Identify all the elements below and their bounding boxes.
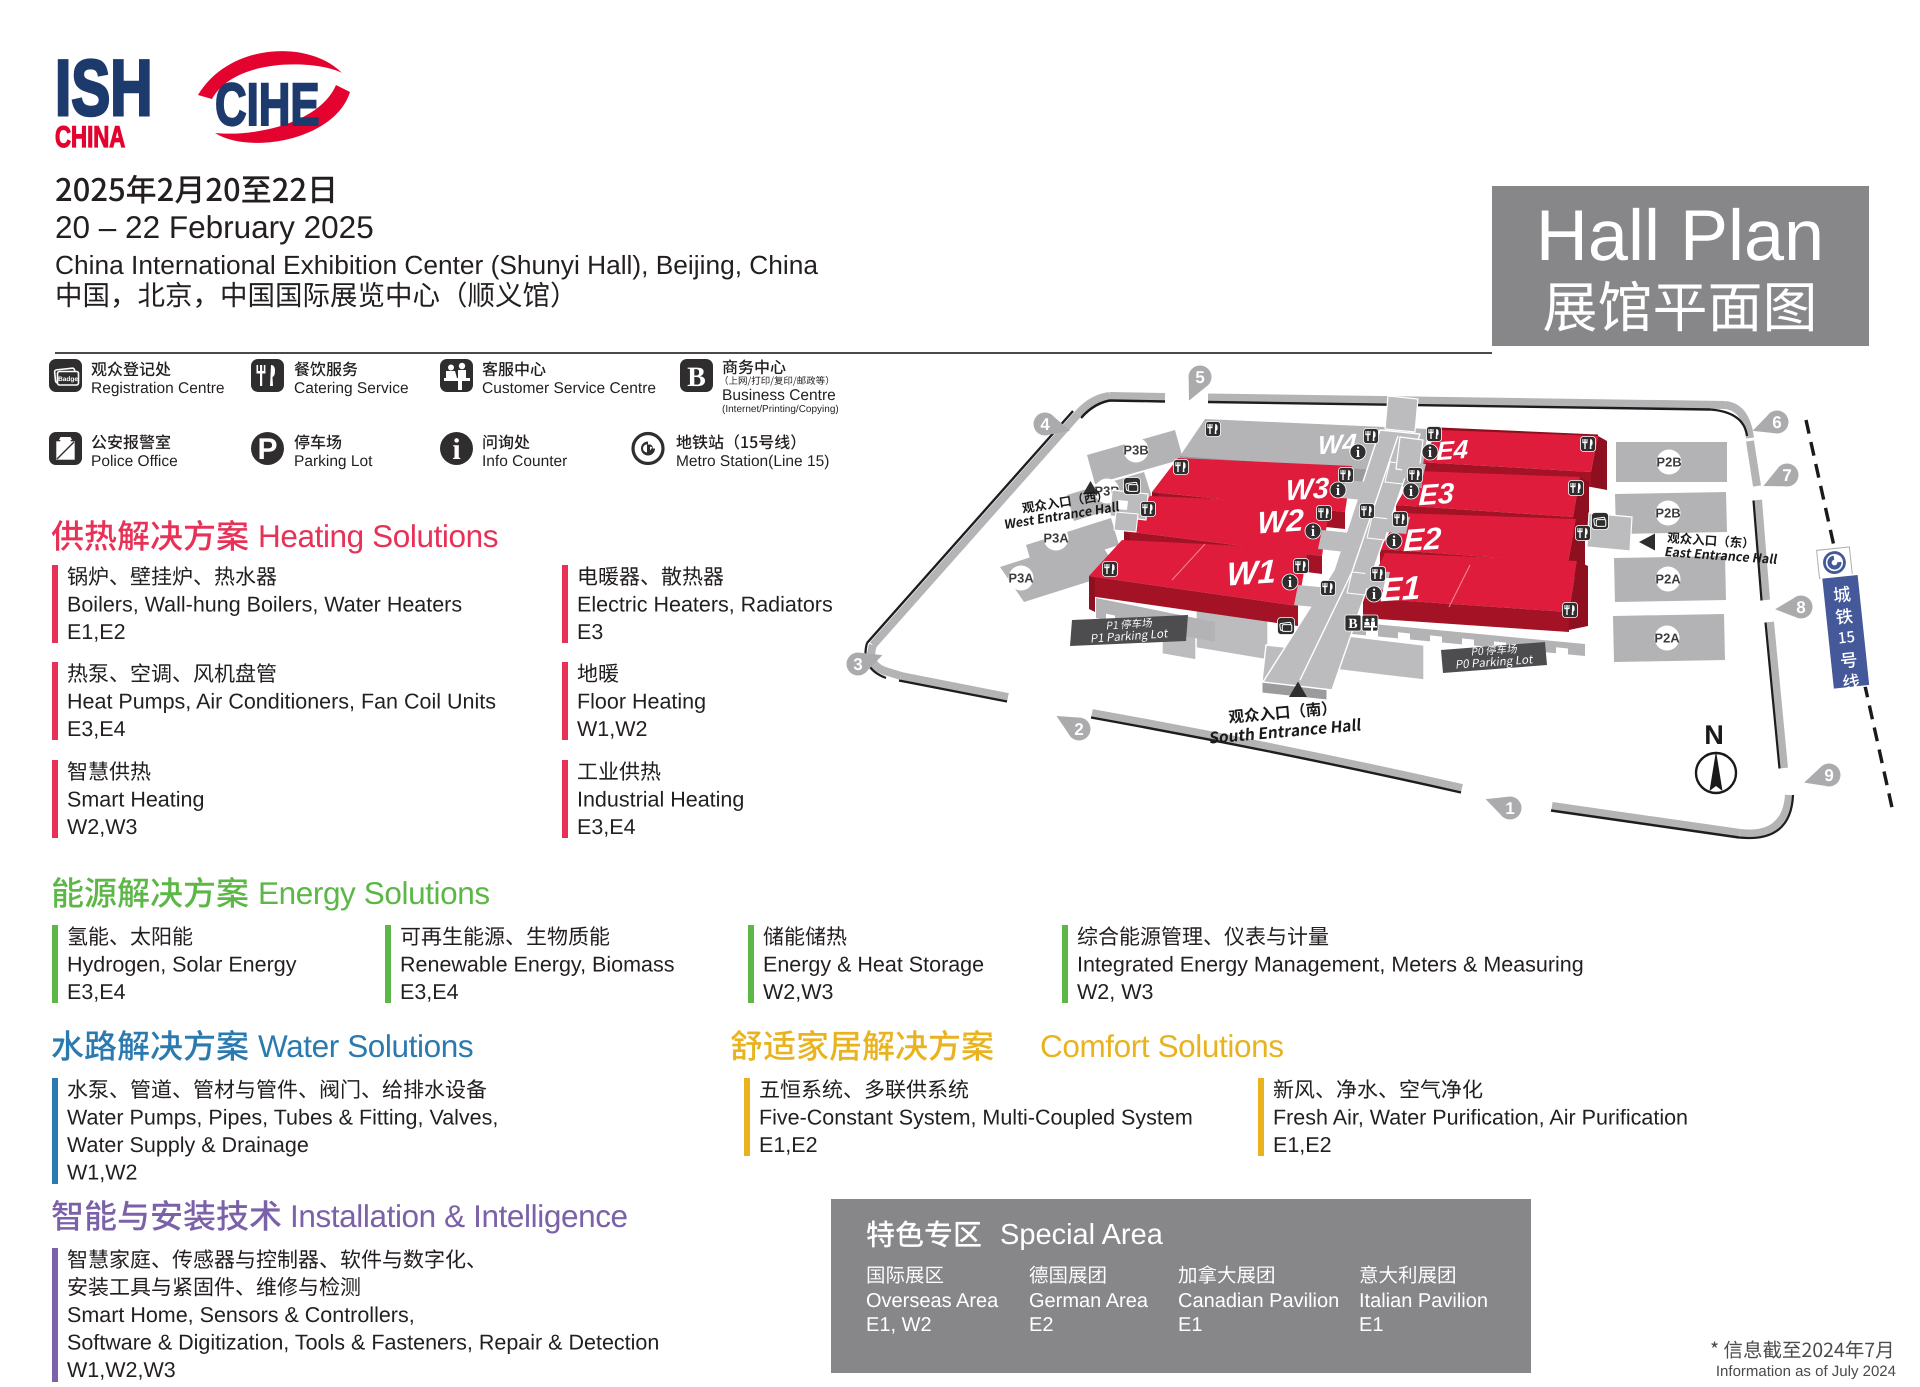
- svg-text:Renewable Energy, Biomass: Renewable Energy, Biomass: [400, 953, 674, 977]
- svg-text:Smart Home, Sensors & Controll: Smart Home, Sensors & Controllers,: [67, 1303, 415, 1327]
- svg-text:Energy & Heat Storage: Energy & Heat Storage: [763, 953, 984, 977]
- svg-text:i: i: [452, 433, 460, 466]
- svg-text:Fresh Air, Water Purification,: Fresh Air, Water Purification, Air Purif…: [1273, 1106, 1688, 1130]
- svg-text:Canadian Pavilion: Canadian Pavilion: [1178, 1290, 1339, 1312]
- svg-text:Smart Heating: Smart Heating: [67, 788, 204, 812]
- svg-text:Catering Service: Catering Service: [294, 380, 409, 397]
- svg-text:E1, W2: E1, W2: [866, 1314, 932, 1336]
- svg-text:Floor Heating: Floor Heating: [577, 690, 706, 714]
- svg-text:Five-Constant System, Multi-Co: Five-Constant System, Multi-Coupled Syst…: [759, 1106, 1193, 1130]
- svg-text:Parking Lot: Parking Lot: [294, 453, 373, 470]
- svg-text:Info Counter: Info Counter: [482, 453, 567, 470]
- svg-text:Police Office: Police Office: [91, 453, 178, 470]
- svg-text:W2,W3: W2,W3: [763, 980, 834, 1004]
- svg-text:W2, W3: W2, W3: [1077, 980, 1153, 1004]
- svg-text:E3,E4: E3,E4: [67, 980, 126, 1004]
- svg-text:Industrial Heating: Industrial Heating: [577, 788, 744, 812]
- svg-text:Special Area: Special Area: [1000, 1219, 1164, 1251]
- svg-text:W2,W3: W2,W3: [67, 815, 138, 839]
- svg-text:Italian Pavilion: Italian Pavilion: [1359, 1290, 1488, 1312]
- svg-text:E3,E4: E3,E4: [67, 717, 126, 741]
- svg-text:20 – 22 February 2025: 20 – 22 February 2025: [55, 209, 374, 245]
- svg-text:(Internet/Printing/Copying): (Internet/Printing/Copying): [722, 404, 839, 415]
- svg-text:Business Centre: Business Centre: [722, 387, 836, 404]
- svg-text:Water Supply & Drainage: Water Supply & Drainage: [67, 1133, 309, 1157]
- svg-text:Water Solutions: Water Solutions: [258, 1028, 473, 1064]
- svg-text:ISH: ISH: [55, 43, 152, 132]
- svg-text:E1,E2: E1,E2: [759, 1133, 818, 1157]
- svg-text:Water Pumps, Pipes, Tubes & Fi: Water Pumps, Pipes, Tubes & Fitting, Val…: [67, 1106, 498, 1130]
- svg-text:W1,W2: W1,W2: [67, 1161, 137, 1185]
- svg-text:CHINA: CHINA: [55, 121, 125, 154]
- svg-text:Metro Station(Line 15): Metro Station(Line 15): [676, 453, 829, 470]
- svg-text:E3,E4: E3,E4: [400, 980, 459, 1004]
- svg-text:Badge: Badge: [58, 376, 78, 383]
- svg-text:Software & Digitization, Tools: Software & Digitization, Tools & Fastene…: [67, 1331, 659, 1355]
- svg-text:Electric Heaters, Radiators: Electric Heaters, Radiators: [577, 593, 833, 617]
- svg-text:E2: E2: [1029, 1314, 1053, 1336]
- svg-text:Heat Pumps, Air Conditioners,: Heat Pumps, Air Conditioners, Fan Coil U…: [67, 690, 496, 714]
- svg-text:E3: E3: [577, 620, 603, 644]
- svg-text:E1: E1: [1178, 1314, 1202, 1336]
- svg-text:Installation & Intelligence: Installation & Intelligence: [290, 1198, 628, 1234]
- svg-text:Information as of July 2024: Information as of July 2024: [1716, 1363, 1896, 1380]
- svg-text:E1,E2: E1,E2: [67, 620, 126, 644]
- svg-text:W1,W2,W3: W1,W2,W3: [67, 1358, 176, 1382]
- svg-text:Energy Solutions: Energy Solutions: [258, 875, 490, 911]
- svg-text:Hall Plan: Hall Plan: [1536, 196, 1824, 276]
- svg-text:P: P: [257, 433, 277, 466]
- svg-text:E3,E4: E3,E4: [577, 815, 636, 839]
- svg-text:German Area: German Area: [1029, 1290, 1149, 1312]
- svg-text:Customer Service Centre: Customer Service Centre: [482, 380, 656, 397]
- svg-text:Hydrogen, Solar Energy: Hydrogen, Solar Energy: [67, 953, 297, 977]
- svg-text:B: B: [687, 362, 706, 393]
- svg-text:CIHE: CIHE: [215, 71, 320, 138]
- svg-text:Heating Solutions: Heating Solutions: [258, 518, 498, 554]
- svg-text:E1,E2: E1,E2: [1273, 1133, 1332, 1157]
- svg-text:Comfort Solutions: Comfort Solutions: [1040, 1028, 1284, 1064]
- svg-text:Overseas Area: Overseas Area: [866, 1290, 999, 1312]
- svg-text:Registration Centre: Registration Centre: [91, 380, 225, 397]
- svg-text:Boilers, Wall-hung Boilers, Wa: Boilers, Wall-hung Boilers, Water Heater…: [67, 593, 462, 617]
- svg-text:China International Exhibition: China International Exhibition Center (S…: [55, 250, 818, 280]
- svg-text:Integrated Energy Management,: Integrated Energy Management, Meters & M…: [1077, 953, 1584, 977]
- svg-text:W1,W2: W1,W2: [577, 717, 647, 741]
- svg-text:E1: E1: [1359, 1314, 1383, 1336]
